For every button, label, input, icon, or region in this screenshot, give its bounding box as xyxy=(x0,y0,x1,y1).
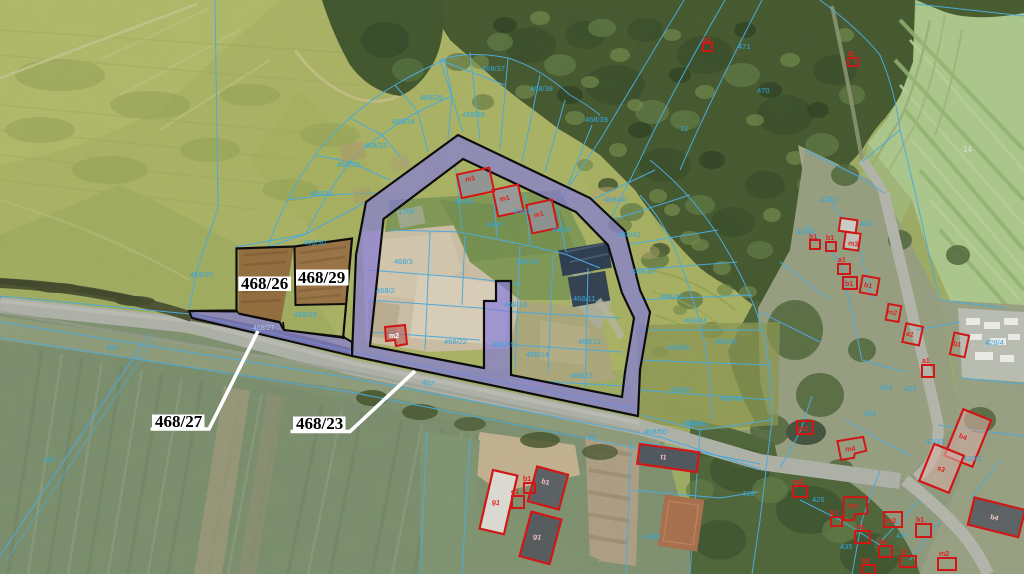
svg-text:468/29: 468/29 xyxy=(298,268,345,287)
svg-text:468/27: 468/27 xyxy=(155,412,203,431)
svg-text:468/23: 468/23 xyxy=(296,414,343,433)
svg-text:468/26: 468/26 xyxy=(241,274,288,293)
